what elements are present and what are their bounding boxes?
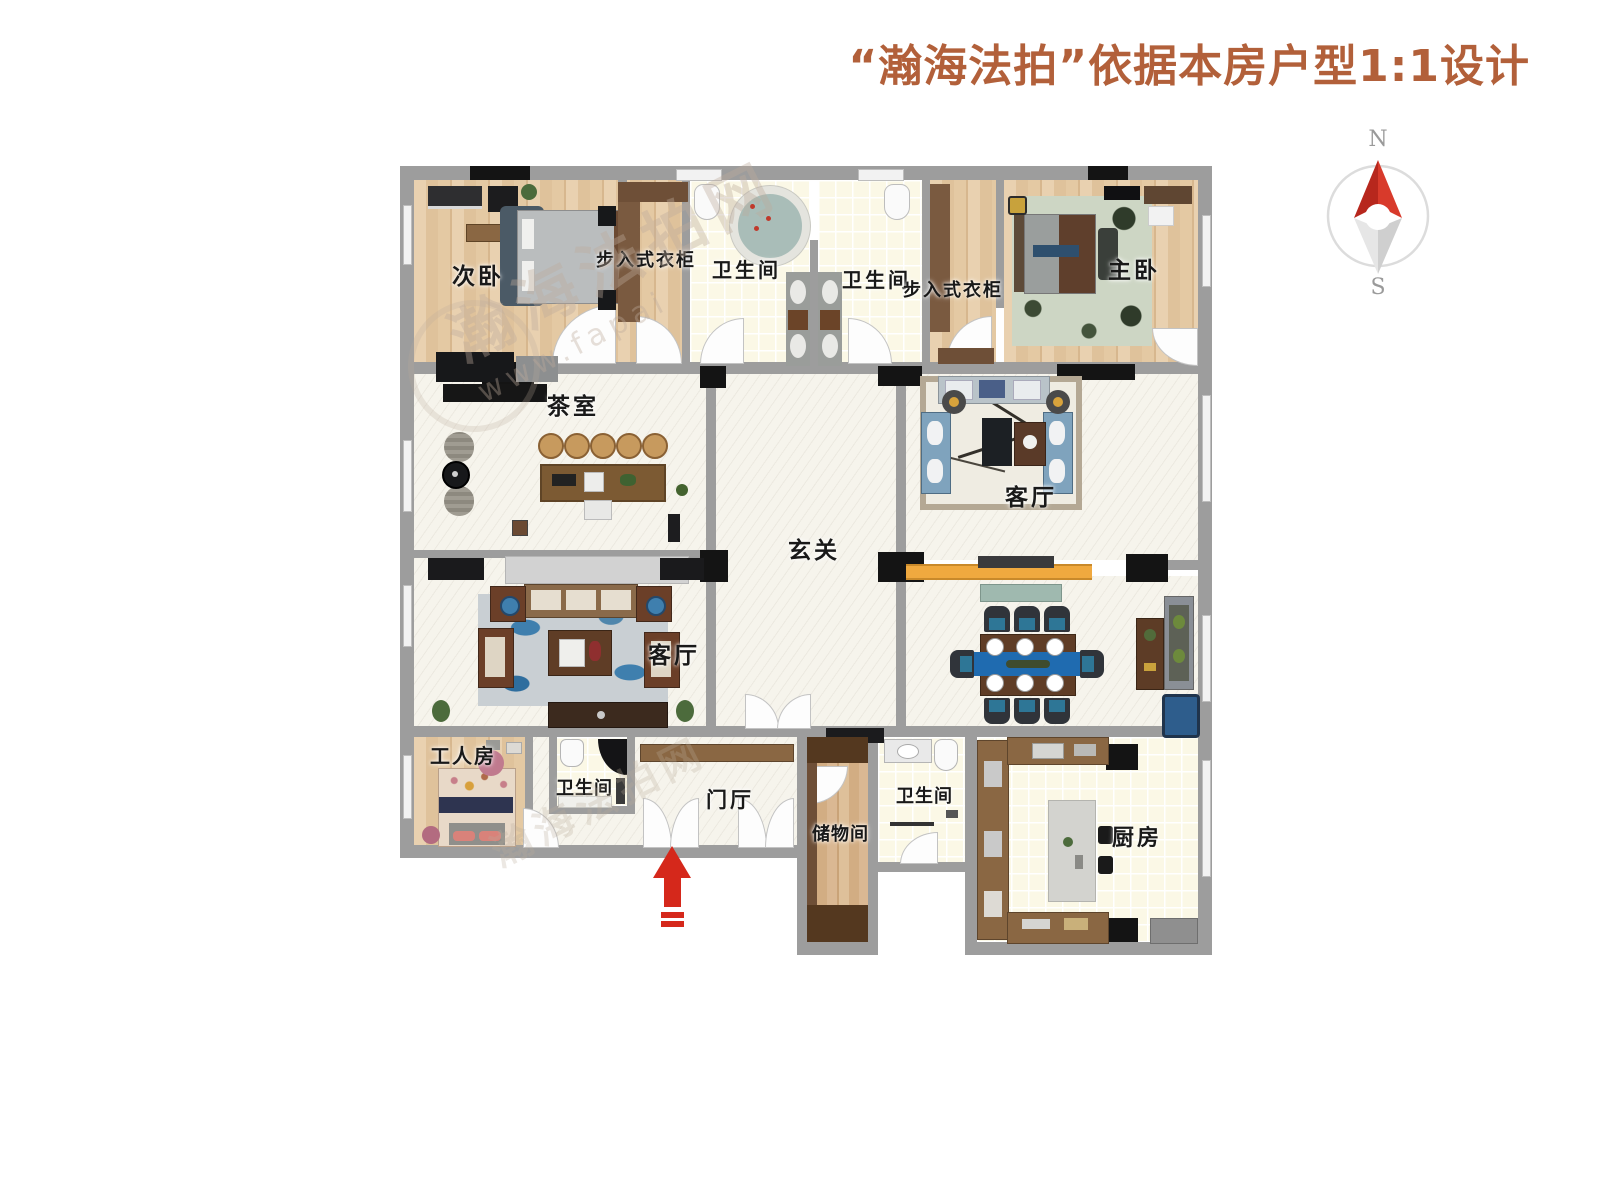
tea-table — [540, 464, 666, 502]
armchair — [444, 486, 474, 516]
piano — [428, 186, 482, 209]
desk — [1144, 186, 1192, 204]
wall-bath3-right — [627, 737, 635, 812]
stove — [1074, 744, 1096, 756]
wall-bath-divider — [810, 240, 818, 368]
sink — [1032, 743, 1064, 759]
petal — [766, 216, 771, 221]
label-living-right: 客厅 — [1005, 487, 1057, 510]
label-storage: 储物间 — [812, 826, 869, 844]
entrance-arrow-icon — [653, 846, 691, 878]
lamp — [1008, 196, 1027, 215]
cabinet — [428, 558, 484, 580]
column — [1088, 166, 1128, 180]
compass-rose-icon: N S — [1318, 120, 1438, 298]
label-tea-room: 茶室 — [547, 396, 599, 419]
window-icon — [858, 169, 904, 181]
appliance — [984, 761, 1002, 787]
decor — [500, 596, 520, 616]
wall-storage-left — [797, 726, 807, 955]
chair — [984, 698, 1010, 724]
cushion — [566, 590, 596, 610]
window-icon — [403, 755, 412, 819]
chair — [984, 606, 1010, 632]
plant-icon — [1173, 649, 1185, 663]
basin — [822, 280, 838, 304]
wall-storage-right — [868, 737, 878, 955]
sofa-side — [1043, 412, 1073, 494]
column — [1126, 554, 1168, 582]
plate — [986, 674, 1004, 692]
tv — [1104, 186, 1140, 200]
side-table — [490, 586, 526, 622]
bathtub — [730, 186, 810, 266]
label-bathroom-2: 卫生间 — [842, 270, 911, 290]
floor-lamp — [668, 514, 680, 542]
counter — [820, 310, 840, 330]
coffee-table — [1014, 422, 1046, 466]
seat — [960, 656, 972, 672]
side-table — [636, 586, 672, 622]
seat — [1019, 618, 1035, 630]
cabinet — [660, 558, 704, 580]
window-icon — [403, 585, 412, 647]
label-foyer: 门厅 — [706, 790, 754, 811]
wall-hall-right — [896, 374, 906, 726]
bed — [1024, 214, 1096, 294]
decor — [1053, 397, 1063, 407]
sink-counter — [818, 272, 842, 366]
label-bathroom-4: 卫生间 — [896, 788, 953, 806]
bench — [1164, 596, 1194, 690]
label-master-bedroom: 主卧 — [1108, 260, 1160, 283]
decor — [1144, 663, 1156, 671]
stool — [1098, 826, 1113, 844]
appliance — [984, 891, 1002, 917]
closet-cabinet — [618, 182, 688, 202]
cushion — [601, 590, 631, 610]
plate — [1016, 674, 1034, 692]
pouf — [422, 826, 440, 844]
label-bathroom-3: 卫生间 — [556, 780, 613, 798]
decor — [646, 596, 666, 616]
bed — [438, 768, 516, 847]
column — [878, 366, 922, 386]
plant-icon — [521, 184, 537, 200]
plant-icon — [1173, 615, 1185, 629]
seat — [1049, 700, 1065, 712]
basin — [790, 280, 806, 304]
plant-icon — [676, 484, 688, 496]
seat — [1019, 700, 1035, 712]
faucet — [1075, 855, 1083, 869]
label-entrance-hall: 玄关 — [788, 540, 840, 563]
stool — [538, 433, 564, 459]
chair — [950, 650, 974, 678]
sink-counter — [884, 739, 932, 763]
decor — [949, 397, 959, 407]
toilet — [934, 739, 958, 771]
seat — [1082, 656, 1094, 672]
side-table — [1046, 390, 1070, 414]
closet-cabinet — [938, 348, 994, 364]
seat — [989, 618, 1005, 630]
cushion — [1013, 380, 1041, 400]
chair — [584, 500, 612, 520]
chair — [1014, 698, 1040, 724]
cushion — [1049, 459, 1065, 483]
cushion — [531, 590, 561, 610]
console — [640, 744, 794, 762]
sofa — [524, 584, 638, 618]
chair — [1080, 650, 1104, 678]
entrance-arrow-bar — [661, 912, 684, 918]
pillow — [453, 831, 475, 841]
wall-storage-bottom — [797, 942, 878, 955]
column — [1106, 918, 1138, 942]
cushion — [485, 637, 505, 677]
plant-icon — [1144, 629, 1156, 641]
plant-icon — [620, 474, 636, 486]
kitchen-island — [1048, 800, 1096, 902]
kitchen-counter — [977, 740, 1009, 940]
label-secondary-bedroom: 次卧 — [452, 266, 504, 289]
stool — [564, 433, 590, 459]
pillow — [522, 261, 534, 291]
armchair — [478, 628, 514, 688]
coffee-table — [982, 418, 1012, 466]
window-icon — [403, 440, 412, 512]
nightstand — [598, 290, 616, 310]
tray — [1023, 435, 1037, 449]
dresser — [516, 356, 558, 382]
column — [700, 550, 728, 582]
cabinet — [616, 778, 625, 804]
console — [980, 584, 1062, 602]
window-icon — [403, 205, 412, 265]
door-mat — [1150, 918, 1198, 944]
petal — [754, 226, 759, 231]
flowers — [589, 641, 601, 661]
toilet — [560, 739, 584, 767]
window-icon — [1202, 760, 1211, 877]
round-table — [442, 461, 470, 489]
wall-bath3-left — [549, 737, 557, 812]
plate — [1046, 674, 1064, 692]
stool — [616, 433, 642, 459]
toilet — [694, 184, 720, 220]
wardrobe — [436, 352, 514, 382]
nightstand — [598, 206, 616, 226]
plant-icon — [1063, 837, 1073, 847]
decor — [506, 742, 522, 754]
teapot — [452, 471, 458, 477]
compass-south-label: S — [1370, 275, 1385, 298]
appliance — [1022, 919, 1050, 929]
stool — [1098, 856, 1113, 874]
wall-kitchen-left — [965, 726, 977, 955]
plate — [1016, 638, 1034, 656]
column — [700, 366, 726, 388]
cushion — [1049, 421, 1065, 445]
side-table — [942, 390, 966, 414]
headboard — [1014, 214, 1024, 292]
seat — [989, 700, 1005, 712]
wall-bath2-closet2 — [922, 180, 930, 368]
label-walkin-closet-2: 步入式衣柜 — [903, 282, 1003, 300]
armchair — [444, 432, 474, 462]
kettle — [584, 472, 604, 492]
petal — [750, 204, 755, 209]
tv-cabinet — [548, 702, 668, 728]
label-maid-room: 工人房 — [430, 746, 496, 766]
pillow — [1033, 245, 1079, 257]
pillow — [522, 219, 534, 249]
compass-north-label: N — [1368, 127, 1387, 152]
label-walkin-closet-1: 步入式衣柜 — [596, 252, 696, 270]
toilet — [884, 184, 910, 220]
column — [470, 166, 530, 180]
sofa-side — [921, 412, 951, 494]
window-icon — [1202, 215, 1211, 287]
chair — [1044, 606, 1070, 632]
plant-icon — [676, 700, 694, 722]
window-icon — [676, 169, 722, 181]
page-title: “瀚海法拍”依据本房户型1:1设计 — [848, 30, 1530, 94]
decor — [597, 711, 605, 719]
plate — [986, 638, 1004, 656]
tray — [559, 639, 585, 667]
cushion — [979, 380, 1005, 398]
coffee-table — [548, 630, 612, 676]
kitchen-counter — [1007, 737, 1109, 765]
kitchen-counter — [1007, 912, 1109, 944]
closet-cabinet — [930, 184, 950, 332]
fixture — [946, 810, 958, 818]
sideboard — [1136, 618, 1164, 690]
label-kitchen: 厨房 — [1112, 828, 1162, 850]
compass: N S — [1318, 120, 1438, 298]
entrance-arrow-stem — [664, 877, 681, 907]
appliance — [984, 831, 1002, 857]
window-icon — [1202, 395, 1211, 502]
floorplan-page: “瀚海法拍”依据本房户型1:1设计 N S — [0, 0, 1600, 1200]
sideboard — [443, 384, 547, 402]
armchair — [1162, 694, 1200, 738]
counter — [788, 310, 808, 330]
pillow — [479, 831, 501, 841]
blanket — [439, 797, 513, 813]
seat — [1148, 206, 1174, 226]
seat — [1049, 618, 1065, 630]
basin — [790, 334, 806, 358]
wardrobe — [807, 737, 868, 763]
decor — [1064, 918, 1088, 930]
window-icon — [1202, 615, 1211, 702]
wall-closet1-bath — [682, 180, 690, 368]
wall-shelf — [978, 556, 1054, 568]
stool — [512, 520, 528, 536]
bench — [466, 224, 502, 242]
cushion — [927, 421, 943, 445]
centerpiece — [1006, 660, 1050, 668]
plant-icon — [432, 700, 450, 722]
cushion — [927, 459, 943, 483]
chair — [1044, 698, 1070, 724]
stool — [590, 433, 616, 459]
basin — [897, 744, 919, 759]
label-bathroom-1: 卫生间 — [712, 260, 781, 280]
basin — [822, 334, 838, 358]
wardrobe — [807, 905, 868, 942]
column — [1106, 744, 1138, 770]
label-living-left: 客厅 — [648, 645, 700, 668]
sink-counter — [786, 272, 810, 366]
tea-tray — [552, 474, 576, 486]
towel-bar — [890, 822, 934, 826]
chair — [1014, 606, 1040, 632]
entrance-arrow-bar — [661, 921, 684, 927]
plate — [1046, 638, 1064, 656]
stool — [642, 433, 668, 459]
